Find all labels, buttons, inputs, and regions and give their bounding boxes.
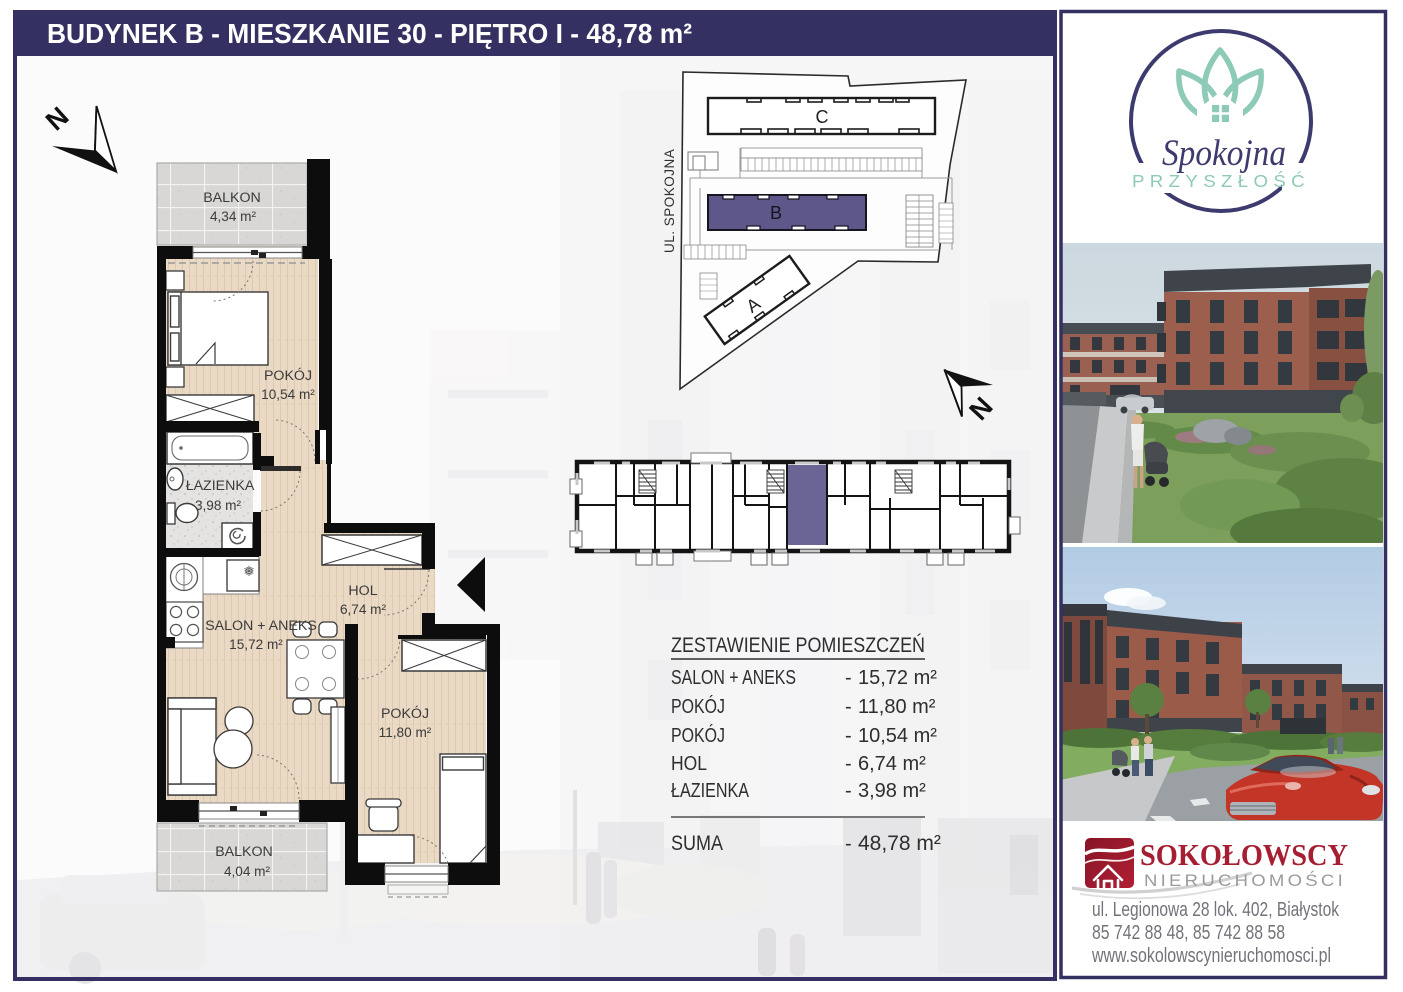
svg-text:SUMA: SUMA bbox=[671, 832, 723, 855]
svg-text:4,34 m²: 4,34 m² bbox=[210, 209, 257, 224]
svg-text:4,04 m²: 4,04 m² bbox=[224, 864, 271, 879]
svg-text:SALON + ANEKS: SALON + ANEKS bbox=[671, 667, 796, 689]
svg-text:15,72 m²: 15,72 m² bbox=[229, 637, 283, 652]
svg-text:15,72 m²: 15,72 m² bbox=[858, 667, 937, 689]
svg-text:PRZYSZŁOŚĆ: PRZYSZŁOŚĆ bbox=[1132, 170, 1310, 191]
svg-text:Spokojna: Spokojna bbox=[1162, 133, 1286, 174]
svg-text:POKÓJ: POKÓJ bbox=[671, 695, 725, 718]
svg-text:11,80 m²: 11,80 m² bbox=[858, 696, 936, 718]
svg-text:BALKON: BALKON bbox=[215, 844, 273, 860]
svg-text:-: - bbox=[845, 696, 852, 718]
svg-text:-: - bbox=[845, 725, 852, 747]
svg-text:BUDYNEK B - MIESZKANIE 30 - PI: BUDYNEK B - MIESZKANIE 30 - PIĘTRO I - 4… bbox=[47, 18, 692, 49]
svg-text:C: C bbox=[816, 107, 829, 127]
svg-text:3,98 m²: 3,98 m² bbox=[195, 498, 242, 513]
svg-text:ZESTAWIENIE POMIESZCZEŃ: ZESTAWIENIE POMIESZCZEŃ bbox=[671, 634, 925, 657]
svg-text:BALKON: BALKON bbox=[203, 190, 261, 206]
svg-text:POKÓJ: POKÓJ bbox=[671, 724, 725, 747]
svg-text:ŁAZIENKA: ŁAZIENKA bbox=[671, 780, 750, 802]
svg-text:❅: ❅ bbox=[243, 563, 255, 579]
svg-text:NIERUCHOMOŚCI: NIERUCHOMOŚCI bbox=[1144, 871, 1346, 890]
svg-text:6,74 m²: 6,74 m² bbox=[858, 753, 926, 775]
svg-text:6,74 m²: 6,74 m² bbox=[340, 602, 387, 617]
svg-text:B: B bbox=[770, 203, 782, 223]
svg-text:3,98 m²: 3,98 m² bbox=[858, 780, 926, 802]
svg-text:SALON + ANEKS: SALON + ANEKS bbox=[205, 618, 317, 634]
svg-text:11,80 m²: 11,80 m² bbox=[379, 725, 432, 740]
svg-text:www.sokolowscynieruchomosci.pl: www.sokolowscynieruchomosci.pl bbox=[1091, 945, 1331, 967]
svg-text:POKÓJ: POKÓJ bbox=[264, 367, 312, 384]
svg-text:-: - bbox=[845, 833, 852, 855]
svg-text:POKÓJ: POKÓJ bbox=[381, 705, 429, 722]
svg-text:-: - bbox=[845, 667, 852, 689]
svg-text:48,78 m²: 48,78 m² bbox=[858, 832, 941, 855]
svg-text:ul. Legionowa 28 lok. 402, Bia: ul. Legionowa 28 lok. 402, Białystok bbox=[1092, 899, 1340, 921]
svg-text:-: - bbox=[845, 753, 852, 775]
svg-text:10,54 m²: 10,54 m² bbox=[261, 387, 315, 402]
svg-text:85 742 88 48, 85 742 88 58: 85 742 88 48, 85 742 88 58 bbox=[1092, 922, 1285, 944]
svg-text:HOL: HOL bbox=[671, 753, 707, 775]
svg-text:UL. SPOKOJNA: UL. SPOKOJNA bbox=[662, 149, 677, 253]
svg-text:HOL: HOL bbox=[348, 583, 377, 599]
svg-text:ŁAZIENKA: ŁAZIENKA bbox=[186, 478, 255, 494]
svg-text:-: - bbox=[845, 780, 852, 802]
svg-text:10,54 m²: 10,54 m² bbox=[858, 725, 937, 747]
svg-text:SOKOŁOWSCY: SOKOŁOWSCY bbox=[1140, 837, 1348, 872]
